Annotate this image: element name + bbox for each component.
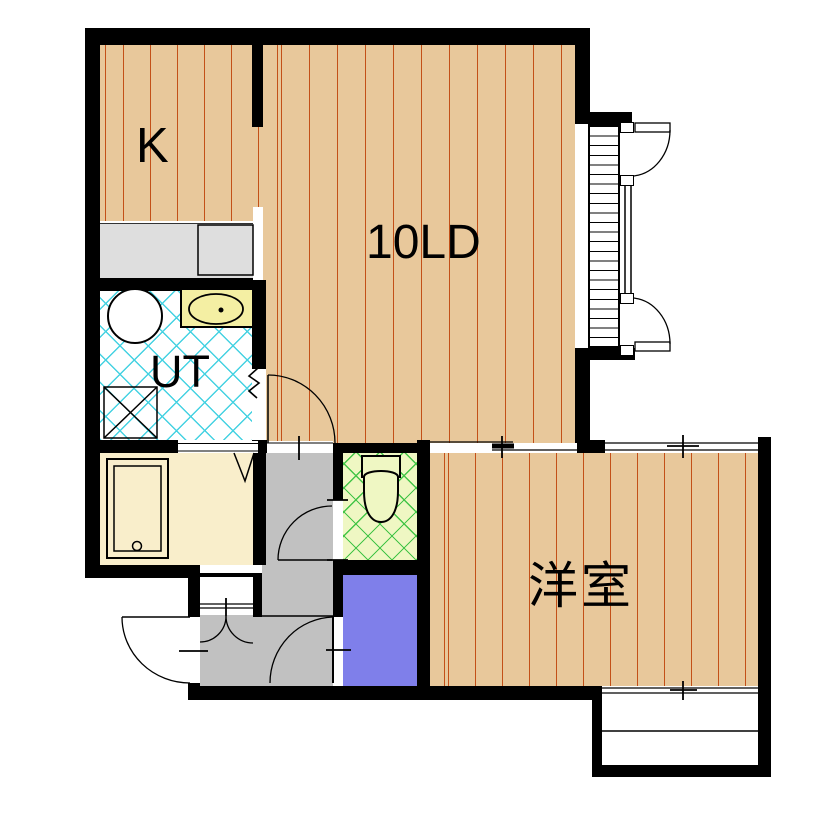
ld-western-sliding-door bbox=[424, 436, 577, 458]
kitchen-label: K bbox=[136, 118, 169, 174]
entrance-door bbox=[122, 617, 208, 683]
storage-closet-door bbox=[270, 617, 351, 683]
ld-door bbox=[267, 375, 335, 460]
bathroom-folding-door bbox=[178, 444, 258, 482]
utility-label: UT bbox=[150, 346, 210, 398]
bathtub-icon bbox=[107, 459, 168, 558]
western-top-window bbox=[605, 435, 758, 458]
bay-window-casements bbox=[625, 123, 670, 351]
shoe-cabinet-doors bbox=[200, 598, 253, 643]
western-bottom-window bbox=[602, 681, 758, 700]
floor-plan: K 10LD UT 洋室 bbox=[0, 0, 826, 826]
laundry-sink-icon bbox=[108, 289, 162, 343]
sink-unit bbox=[198, 225, 253, 275]
western-room-label: 洋室 bbox=[528, 546, 634, 618]
living-dining-label: 10LD bbox=[366, 215, 481, 270]
washbasin-icon bbox=[181, 289, 253, 327]
linework-layer bbox=[0, 0, 826, 826]
toilet-icon bbox=[362, 456, 400, 522]
toilet-door bbox=[278, 500, 348, 560]
opening-zigzag-mark bbox=[249, 368, 259, 398]
